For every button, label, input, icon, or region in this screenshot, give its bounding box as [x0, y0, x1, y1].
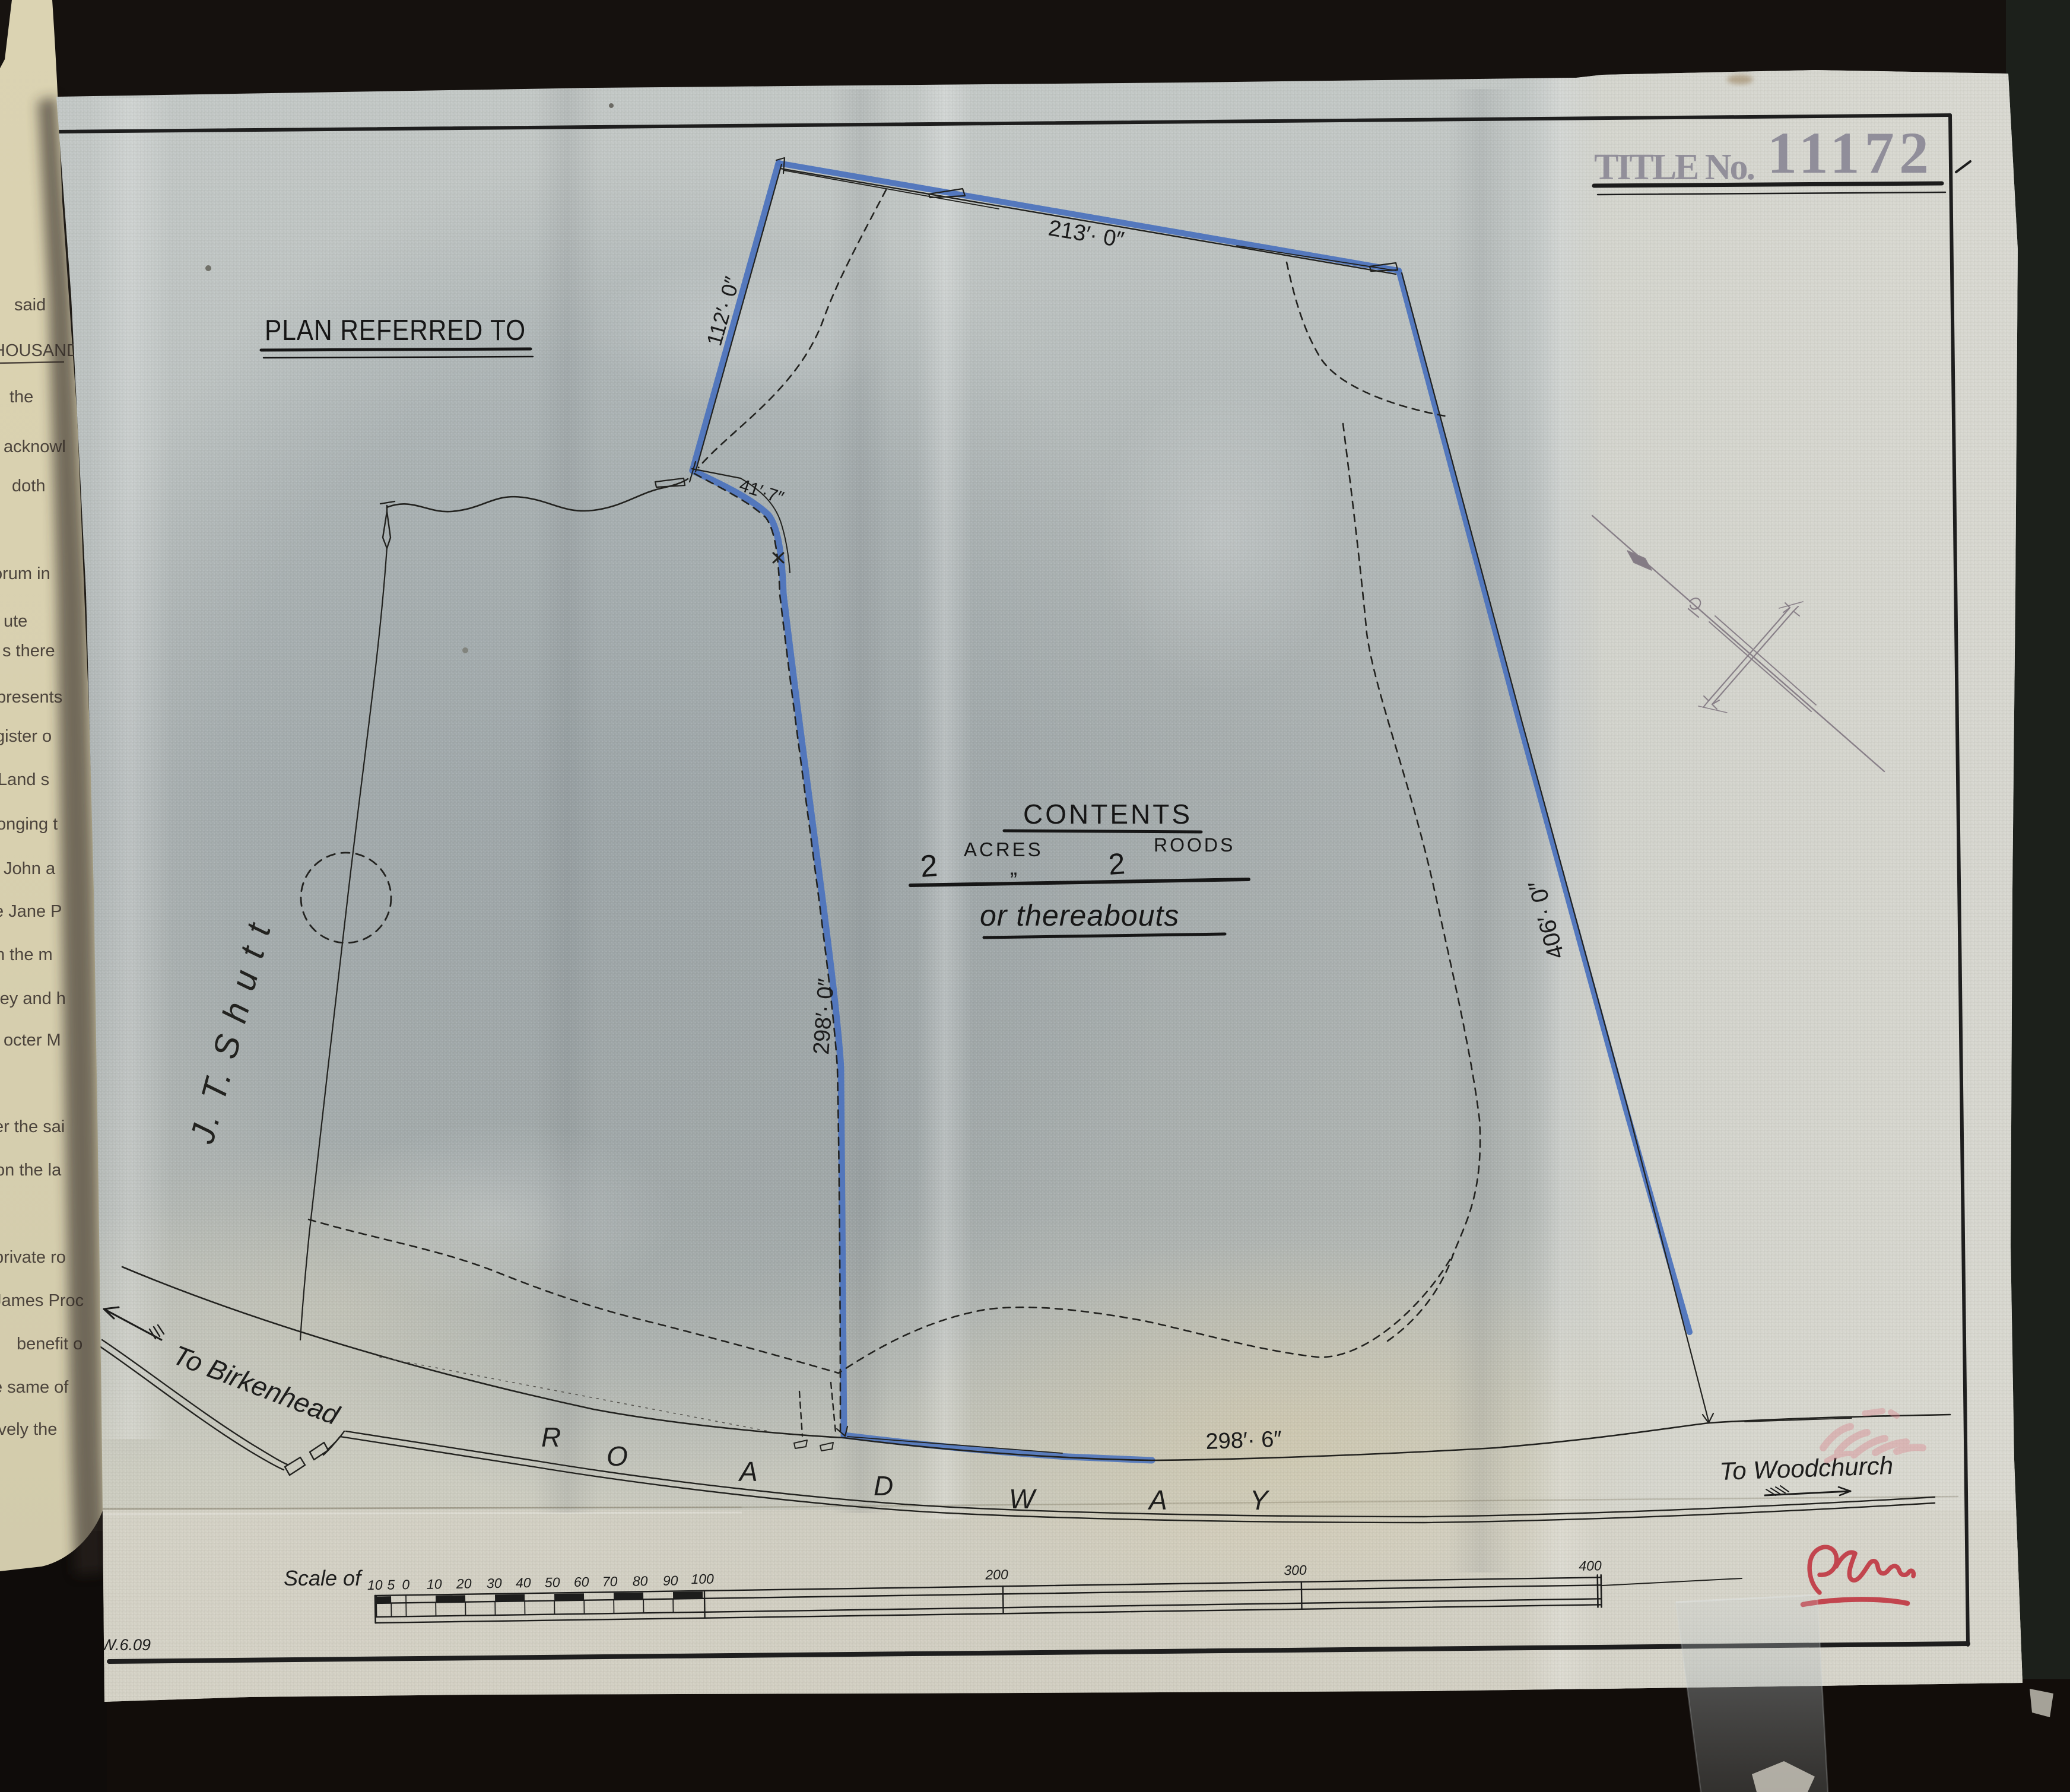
svg-text:onging t: onging t — [0, 815, 58, 834]
svg-text:A: A — [738, 1456, 758, 1487]
svg-text:2: 2 — [1107, 847, 1126, 881]
svg-text:„: „ — [1010, 855, 1017, 879]
svg-text:5: 5 — [387, 1577, 395, 1593]
svg-text:A: A — [1147, 1485, 1167, 1515]
svg-text:90: 90 — [663, 1572, 678, 1588]
svg-text:2: 2 — [919, 849, 939, 884]
svg-text:30: 30 — [487, 1575, 502, 1591]
svg-text:said: said — [14, 296, 46, 314]
svg-text:octer M: octer M — [4, 1031, 61, 1050]
svg-text:TITLE No.: TITLE No. — [1594, 147, 1755, 188]
svg-text:ROODS: ROODS — [1154, 834, 1235, 856]
svg-text:presents: presents — [0, 688, 62, 707]
svg-text:0: 0 — [402, 1577, 409, 1592]
svg-text:e Jane P: e Jane P — [0, 902, 62, 921]
svg-text:20: 20 — [456, 1576, 472, 1591]
svg-text:80: 80 — [633, 1573, 648, 1588]
svg-text:or thereabouts: or thereabouts — [980, 899, 1179, 932]
svg-text:50: 50 — [545, 1574, 560, 1590]
svg-text:D: D — [874, 1470, 893, 1501]
svg-text:e same of: e same of — [0, 1378, 69, 1397]
svg-text:Y: Y — [1250, 1485, 1270, 1515]
svg-text:n the m: n the m — [0, 945, 53, 964]
svg-text:ACRES: ACRES — [964, 838, 1043, 860]
svg-text:60: 60 — [574, 1574, 589, 1590]
svg-text:Land s: Land s — [0, 770, 49, 789]
svg-text:Scale of: Scale of — [284, 1566, 363, 1590]
svg-text:40: 40 — [516, 1575, 531, 1590]
svg-text:rey and h: rey and h — [0, 989, 66, 1008]
svg-text:s there: s there — [2, 641, 55, 660]
svg-text:W: W — [1009, 1483, 1037, 1514]
svg-text:100: 100 — [691, 1571, 714, 1587]
svg-text:R: R — [541, 1422, 561, 1453]
svg-text:orum in: orum in — [0, 564, 50, 583]
svg-text:70: 70 — [602, 1574, 618, 1589]
svg-text:11172: 11172 — [1767, 120, 1929, 186]
svg-text:John a: John a — [4, 859, 56, 878]
svg-text:the: the — [9, 387, 33, 406]
svg-text:300: 300 — [1284, 1562, 1307, 1578]
svg-text:private ro: private ro — [0, 1248, 66, 1267]
svg-text:doth: doth — [12, 476, 45, 495]
svg-text:gister o: gister o — [0, 727, 52, 746]
svg-text:on the la: on the la — [0, 1161, 62, 1180]
svg-text:CONTENTS: CONTENTS — [1023, 799, 1192, 830]
svg-text:er the sai: er the sai — [0, 1117, 65, 1136]
svg-text:298′· 0″: 298′· 0″ — [809, 978, 839, 1056]
svg-text:200: 200 — [985, 1567, 1008, 1583]
svg-text:298′· 6″: 298′· 6″ — [1205, 1427, 1282, 1454]
svg-text:10: 10 — [427, 1576, 442, 1591]
svg-text:PLAN REFERRED TO: PLAN REFERRED TO — [265, 314, 526, 347]
svg-text:ively the: ively the — [0, 1420, 57, 1439]
svg-text:ute: ute — [4, 612, 27, 631]
svg-text:400: 400 — [1579, 1558, 1602, 1574]
svg-text:O: O — [607, 1441, 628, 1472]
svg-text:10: 10 — [367, 1577, 383, 1593]
svg-text:.W.6.09: .W.6.09 — [96, 1636, 151, 1654]
